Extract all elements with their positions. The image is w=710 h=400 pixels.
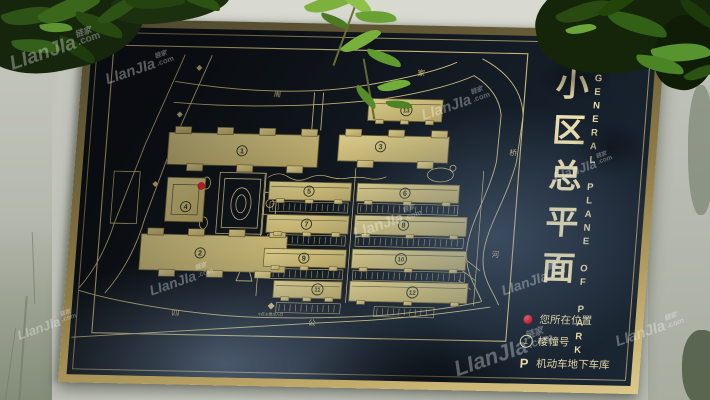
building-number: 9 <box>302 254 307 263</box>
garden-path-wavy <box>268 174 386 183</box>
road-name-char: 河 <box>491 250 500 259</box>
legend-row-building-number: 1 楼幢号 <box>517 334 612 351</box>
building-number: 6 <box>403 189 408 198</box>
legend-label: 楼幢号 <box>537 334 570 350</box>
legend-row-location: 您所在位置 <box>519 312 614 329</box>
site-plan-map: 12345678910111213周家桥河四公小区主要出入口 <box>70 31 544 360</box>
legend-label: 机动车地下车库 <box>536 356 611 373</box>
building-number: 4 <box>183 202 188 211</box>
building-number: 2 <box>198 248 203 257</box>
entrance-caption: 小区主要出入口 <box>258 311 284 317</box>
building-number: 8 <box>401 221 406 230</box>
road-name-char: 四 <box>171 308 179 317</box>
entry-road-top <box>312 92 324 130</box>
building-8 <box>354 215 468 239</box>
road-name-char: 桥 <box>509 147 518 157</box>
buildings-layer <box>136 94 482 307</box>
building-10 <box>351 249 467 273</box>
road-name-char: 公 <box>308 318 317 327</box>
building-number: 5 <box>307 187 312 196</box>
legend-row-garage: P 机动车地下车库 <box>516 356 611 373</box>
road-corner-outer <box>475 59 528 162</box>
sign-face: 12345678910111213周家桥河四公小区主要出入口 小区总平面 GEN… <box>67 27 658 386</box>
you-are-here-dot <box>198 182 205 189</box>
you-are-here-dot-icon <box>519 315 536 324</box>
photo-of-site-plan-sign: 12345678910111213周家桥河四公小区主要出入口 小区总平面 GEN… <box>0 0 710 400</box>
building-11 <box>273 281 343 302</box>
circled-number-icon: 1 <box>517 335 534 348</box>
building-3 <box>337 129 450 169</box>
river-bank-outer <box>479 161 516 305</box>
pond <box>427 168 454 183</box>
road-top-upper <box>175 56 457 94</box>
road-name-char: 家 <box>417 67 426 77</box>
site-plan-sign-board: 12345678910111213周家桥河四公小区主要出入口 小区总平面 GEN… <box>58 19 666 395</box>
building-number: 10 <box>397 257 405 263</box>
pond-islet <box>450 165 456 171</box>
foliage-blob <box>682 330 710 400</box>
building-number: 1 <box>240 146 245 155</box>
map-legend: 您所在位置 1 楼幢号 P 机动车地下车库 <box>515 312 614 380</box>
building-number: 13 <box>403 108 411 114</box>
building-number: 12 <box>409 291 417 297</box>
building-number: 11 <box>314 288 321 294</box>
legend-label: 您所在位置 <box>539 312 593 328</box>
building-number: 7 <box>304 220 309 229</box>
building-6 <box>356 183 460 206</box>
road-bottom-outer <box>70 298 490 348</box>
road-name-char: 周 <box>273 89 281 98</box>
foliage-blob <box>688 85 710 215</box>
entrance-marker <box>267 302 275 309</box>
building-number: 3 <box>378 142 383 151</box>
parking-letter-icon: P <box>516 356 533 371</box>
river-bank-inner <box>463 161 497 302</box>
